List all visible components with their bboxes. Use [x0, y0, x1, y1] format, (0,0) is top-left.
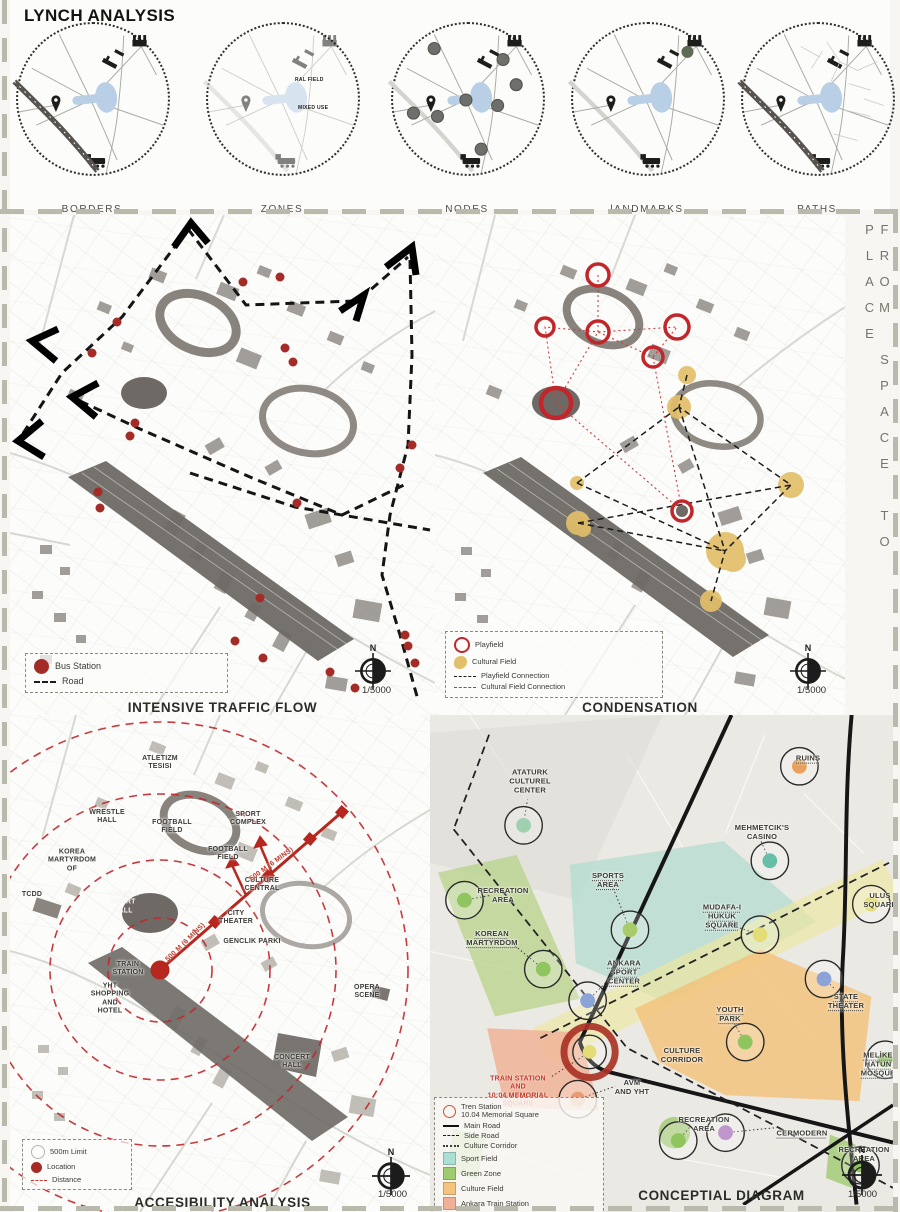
- map-label: MELİKE HATUN MOSQUE: [861, 1052, 893, 1079]
- map-label: RECREATION AREA: [678, 1116, 729, 1134]
- bus-station-icon: [34, 659, 49, 674]
- legend-row: Cultural Field: [454, 656, 654, 669]
- compass-icon: N: [790, 643, 826, 689]
- side-text: FROM SPACE TO PLACE: [848, 222, 892, 714]
- accessibility-legend: 500m Limit Location Distance: [22, 1139, 132, 1190]
- legend-row: Main Road: [443, 1122, 595, 1130]
- map-label: AVM AND YHT: [615, 1079, 650, 1097]
- legend-label: Green Zone: [461, 1170, 501, 1178]
- legend-row: Side Road: [443, 1132, 595, 1140]
- legend-label: Cultural Field Connection: [481, 683, 565, 691]
- map-title: INTENSIVE TRAFFIC FLOW: [10, 700, 435, 715]
- map-label: ANKARA SPORT HALL: [107, 891, 139, 916]
- traffic-flow-map: Bus Station Road N 1/5000 INTENSIVE TRAF…: [10, 215, 435, 715]
- legend-row: Green Zone: [443, 1167, 595, 1180]
- paths-diagram: [741, 22, 895, 176]
- legend-label: Side Road: [464, 1132, 499, 1140]
- conceptual-diagram: ATATURK CULTUREL CENTER RUINS MEHMETCIK'…: [430, 715, 893, 1212]
- map-label: KOREA MARTYRDOM OF: [48, 849, 96, 874]
- map-title: CONCEPTIAL DIAGRAM: [430, 1188, 893, 1203]
- lynch-zones: RAL FIELD MIXED USE ZONES: [206, 22, 358, 176]
- compass-icon: N: [355, 643, 391, 689]
- lynch-nodes: NODES: [391, 22, 543, 176]
- accessibility-map-art: [10, 715, 435, 1212]
- borders-diagram: [16, 22, 170, 176]
- map-label: MUDAFA-I HUKUK SQUARE: [703, 904, 741, 931]
- map-label: TCDD: [22, 891, 42, 899]
- cultural-field-icon: [454, 656, 467, 669]
- map-label: FOOTBALL FIELD: [208, 846, 248, 863]
- traffic-routes: [22, 229, 430, 700]
- distance-icon: [31, 1180, 47, 1181]
- map-label: CERMODERN: [777, 1130, 828, 1139]
- tren-station-icon: [443, 1105, 456, 1118]
- urban-analysis-poster: LYNCH ANALYSIS BORDERS RAL FIELD MIXED U…: [0, 0, 900, 1212]
- map-label: SPORT COMPLEX: [230, 811, 266, 828]
- map-label: TRAIN STATION: [112, 961, 143, 978]
- map-label: ATLETIZM TESISI: [142, 755, 178, 772]
- bottom-frame: [0, 1206, 900, 1211]
- legend-label: 10.04 Memorial Square: [461, 1111, 539, 1119]
- side-road-icon: [443, 1135, 459, 1136]
- map-label: FOOTBALL FIELD: [152, 819, 192, 836]
- zones-diagram: RAL FIELD MIXED USE: [206, 22, 360, 176]
- landmarks-diagram: [571, 22, 725, 176]
- legend-label: Distance: [52, 1176, 81, 1184]
- zone-label: RAL FIELD: [295, 77, 324, 83]
- scale-label: 1/5000: [797, 685, 826, 696]
- legend-label: Playfield Connection: [481, 672, 549, 680]
- map-label: ATATURK CULTUREL CENTER: [509, 769, 550, 796]
- map-label: RUINS: [796, 755, 820, 764]
- map-label: KOREAN MARTYRDOM: [466, 930, 517, 948]
- legend-row: Playfield: [454, 637, 654, 653]
- map-label: CULTURE CORRIDOR: [661, 1047, 703, 1065]
- legend-label: Playfield: [475, 641, 503, 649]
- playfield-connection-icon: [454, 676, 476, 677]
- section-divider: [0, 209, 900, 214]
- compass-icon: N: [372, 1147, 410, 1195]
- legend-label: 500m Limit: [50, 1148, 87, 1156]
- map-label: STATE THEATER: [828, 993, 864, 1011]
- legend-label: Sport Field: [461, 1155, 497, 1163]
- playfield-icon: [454, 637, 470, 653]
- legend-label: Main Road: [464, 1122, 500, 1130]
- legend-row: Bus Station: [34, 659, 219, 674]
- sport-field-swatch: [443, 1152, 456, 1165]
- legend-row: 500m Limit: [31, 1145, 123, 1159]
- lynch-analysis-section: LYNCH ANALYSIS BORDERS RAL FIELD MIXED U…: [10, 0, 890, 210]
- condensation-legend: Playfield Cultural Field Playfield Conne…: [445, 631, 663, 698]
- legend-row: Tren Station 10.04 Memorial Square: [443, 1103, 595, 1120]
- limit-icon: [31, 1145, 45, 1159]
- main-road-icon: [443, 1125, 459, 1127]
- legend-row: Location: [31, 1162, 123, 1173]
- right-frame: [893, 209, 898, 1212]
- legend-row: Culture Corridor: [443, 1142, 595, 1150]
- legend-label: Road: [62, 677, 84, 687]
- traffic-map-art: [10, 215, 435, 715]
- legend-row: Cultural Field Connection: [454, 683, 654, 691]
- map-label: SPORTS AREA: [592, 872, 624, 890]
- legend-row: Road: [34, 677, 219, 687]
- accessibility-map: ATLETIZM TESISI WRESTLE HALL FOOTBALL FI…: [10, 715, 435, 1212]
- condensation-map: Playfield Cultural Field Playfield Conne…: [435, 215, 845, 715]
- legend-label: Cultural Field: [472, 658, 516, 666]
- map-label: GENCLIK PARKI: [223, 938, 280, 946]
- map-label: ANKARA SPORT CENTER: [607, 960, 641, 987]
- lynch-landmarks: lANDMARKS: [571, 22, 723, 176]
- legend-label: Location: [47, 1163, 75, 1171]
- map-label: WRESTLE HALL: [89, 809, 125, 826]
- map-label: YHT SHOPPING AND HOTEL: [91, 983, 130, 1016]
- location-icon: [31, 1162, 42, 1173]
- traffic-legend: Bus Station Road: [25, 653, 228, 693]
- legend-row: Sport Field: [443, 1152, 595, 1165]
- nodes-diagram: [391, 22, 545, 176]
- map-label: YOUTH PARK: [716, 1006, 743, 1024]
- legend-label: Culture Corridor: [464, 1142, 517, 1150]
- culture-corridor-icon: [443, 1145, 459, 1147]
- road-icon: [34, 681, 56, 683]
- lynch-borders: BORDERS: [16, 22, 168, 176]
- cultural-field-connection-icon: [454, 687, 476, 688]
- map-label: OPERA SCENE: [354, 984, 380, 1001]
- left-frame: [2, 0, 7, 1212]
- zone-label: MIXED USE: [298, 105, 328, 111]
- map-label: CONCERT HALL: [274, 1054, 310, 1071]
- legend-row: Playfield Connection: [454, 672, 654, 680]
- map-label: ULUS SQUARE: [863, 892, 893, 910]
- green-zone-swatch: [443, 1167, 456, 1180]
- map-label: CITY THEATER: [219, 910, 253, 927]
- legend-label: Bus Station: [55, 662, 101, 672]
- map-title: CONDENSATION: [435, 700, 845, 715]
- bus-station-dots: [88, 273, 420, 693]
- legend-row: Distance: [31, 1176, 123, 1184]
- lynch-paths: PATHS: [741, 22, 893, 176]
- scale-label: 1/5000: [362, 685, 391, 696]
- map-label: MEHMETCIK'S CASINO: [735, 824, 789, 842]
- map-label: RECREATION AREA: [477, 887, 528, 905]
